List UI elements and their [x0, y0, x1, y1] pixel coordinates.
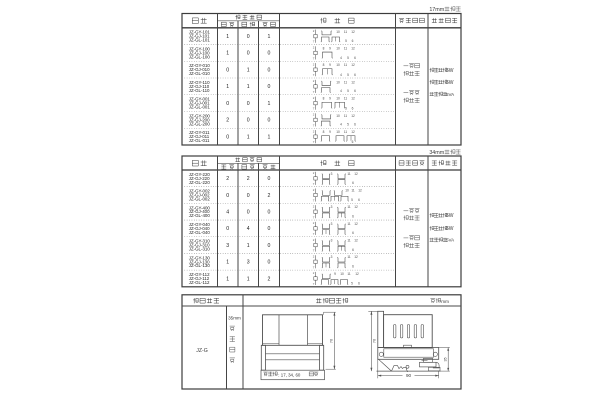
svg-text:34mm: 34mm — [429, 150, 444, 156]
svg-text:1: 1 — [247, 67, 250, 73]
svg-text:3: 3 — [247, 260, 250, 266]
svg-text:5VA: 5VA — [446, 92, 454, 97]
svg-text:10: 10 — [336, 30, 340, 34]
svg-text:11: 11 — [344, 97, 348, 101]
svg-text:4: 4 — [247, 226, 250, 232]
svg-text:0: 0 — [226, 193, 229, 199]
svg-text:5: 5 — [345, 39, 347, 43]
svg-text:JZ-GL-110: JZ-GL-110 — [189, 88, 210, 93]
svg-text:11: 11 — [344, 80, 348, 84]
svg-text:0: 0 — [268, 210, 271, 216]
svg-text:6: 6 — [354, 73, 356, 77]
svg-text:0: 0 — [268, 226, 271, 232]
svg-text:12: 12 — [354, 205, 358, 209]
svg-text:JZ-GL-130: JZ-GL-130 — [189, 263, 211, 268]
svg-text:12: 12 — [354, 239, 358, 243]
svg-text:3: 3 — [331, 239, 333, 243]
svg-text:70: 70 — [330, 339, 334, 343]
svg-text:11: 11 — [351, 188, 355, 192]
svg-text:0: 0 — [247, 193, 250, 199]
svg-text:2: 2 — [268, 193, 271, 199]
svg-text:4: 4 — [340, 56, 342, 60]
svg-text:1: 1 — [247, 276, 250, 282]
svg-text:0: 0 — [247, 34, 250, 40]
svg-text:5: 5 — [345, 106, 347, 110]
svg-text:4: 4 — [340, 123, 342, 127]
svg-text:1: 1 — [268, 101, 271, 107]
svg-text:JZ-GL-040: JZ-GL-040 — [189, 230, 211, 235]
svg-text:10: 10 — [336, 130, 340, 134]
svg-text:0: 0 — [268, 67, 271, 73]
svg-text:1: 1 — [226, 276, 229, 282]
svg-text:2: 2 — [247, 176, 250, 182]
svg-text:3: 3 — [331, 172, 333, 176]
svg-text:9: 9 — [329, 97, 331, 101]
svg-text:35mm: 35mm — [228, 316, 241, 321]
svg-text:4: 4 — [226, 210, 229, 216]
svg-text:17mm: 17mm — [429, 7, 444, 13]
svg-text:2: 2 — [226, 176, 229, 182]
svg-text:35: 35 — [444, 358, 448, 362]
svg-text:90: 90 — [406, 373, 412, 378]
svg-text:0: 0 — [226, 67, 229, 73]
svg-text:11: 11 — [347, 222, 351, 226]
svg-text:JZ-G: JZ-G — [196, 348, 208, 354]
svg-text:1: 1 — [268, 134, 271, 140]
svg-text:10: 10 — [336, 80, 340, 84]
svg-text:8: 8 — [323, 63, 325, 67]
svg-text:4: 4 — [340, 73, 342, 77]
svg-text:12: 12 — [351, 97, 355, 101]
svg-text:10: 10 — [345, 188, 349, 192]
svg-text:1: 1 — [247, 243, 250, 249]
svg-text:2: 2 — [226, 118, 229, 124]
svg-text:6: 6 — [352, 265, 354, 269]
svg-text:mm: mm — [441, 299, 449, 304]
svg-text:6: 6 — [352, 181, 354, 185]
svg-text:9: 9 — [334, 272, 336, 276]
svg-text:3: 3 — [226, 243, 229, 249]
svg-text:11: 11 — [347, 205, 351, 209]
svg-text:JZ-GL-400: JZ-GL-400 — [189, 213, 211, 218]
svg-text:12: 12 — [355, 272, 359, 276]
svg-text:0: 0 — [268, 243, 271, 249]
svg-text:1: 1 — [226, 260, 229, 266]
svg-text:1: 1 — [226, 51, 229, 57]
svg-text:12: 12 — [354, 172, 358, 176]
svg-text:10: 10 — [336, 114, 340, 118]
svg-text:0: 0 — [268, 84, 271, 90]
svg-text:JZ-GL-112: JZ-GL-112 — [189, 280, 210, 285]
svg-text:10: 10 — [340, 272, 344, 276]
svg-text:12: 12 — [351, 130, 355, 134]
svg-text:5: 5 — [347, 73, 349, 77]
svg-text:0: 0 — [247, 51, 250, 57]
svg-text:1: 1 — [226, 34, 229, 40]
svg-text:0: 0 — [226, 134, 229, 140]
svg-text:11: 11 — [344, 46, 348, 50]
svg-text:12: 12 — [351, 80, 355, 84]
svg-text:JZ-GL-200: JZ-GL-200 — [189, 121, 211, 126]
svg-text:0: 0 — [268, 176, 271, 182]
svg-text:3: 3 — [331, 222, 333, 226]
svg-text:5: 5 — [351, 198, 353, 202]
svg-text:4: 4 — [340, 89, 342, 93]
svg-text:9: 9 — [329, 46, 331, 50]
svg-text:0: 0 — [247, 101, 250, 107]
svg-text:6: 6 — [354, 56, 356, 60]
svg-text:5: 5 — [347, 89, 349, 93]
svg-text:11: 11 — [344, 63, 348, 67]
svg-text:6: 6 — [352, 140, 354, 144]
svg-text:17, 34, 60: 17, 34, 60 — [281, 373, 301, 378]
svg-text:11: 11 — [347, 255, 351, 259]
svg-text:12: 12 — [354, 222, 358, 226]
svg-text:JZ-GL-101: JZ-GL-101 — [189, 38, 211, 43]
svg-text:70: 70 — [372, 339, 376, 343]
svg-text:JZ-GL-100: JZ-GL-100 — [189, 54, 211, 59]
svg-text:11: 11 — [344, 30, 348, 34]
svg-text:6: 6 — [352, 248, 354, 252]
svg-text:5: 5 — [351, 281, 353, 285]
svg-text:12: 12 — [351, 46, 355, 50]
svg-text:11: 11 — [344, 114, 348, 118]
svg-text::: : — [278, 373, 279, 378]
svg-text:JZ-GL-310: JZ-GL-310 — [189, 247, 211, 252]
svg-text:6: 6 — [352, 215, 354, 219]
svg-text:8: 8 — [323, 46, 325, 50]
svg-text:6: 6 — [352, 106, 354, 110]
svg-text:6: 6 — [358, 198, 360, 202]
svg-text:10: 10 — [336, 46, 340, 50]
svg-text:11: 11 — [347, 239, 351, 243]
svg-text:0: 0 — [226, 226, 229, 232]
svg-text:5: 5 — [347, 123, 349, 127]
svg-text:0: 0 — [268, 260, 271, 266]
svg-text:6: 6 — [354, 123, 356, 127]
svg-text:0: 0 — [247, 210, 250, 216]
svg-text:11: 11 — [347, 172, 351, 176]
svg-text:JZ-GL-010: JZ-GL-010 — [189, 71, 211, 76]
svg-text:8: 8 — [323, 130, 325, 134]
svg-text:5: 5 — [347, 56, 349, 60]
svg-text:5VA: 5VA — [446, 238, 454, 243]
svg-text:6: 6 — [352, 39, 354, 43]
svg-text:8: 8 — [323, 97, 325, 101]
svg-text:6: 6 — [358, 281, 360, 285]
svg-text:3: 3 — [331, 255, 333, 259]
svg-text:12: 12 — [351, 63, 355, 67]
svg-text:9: 9 — [329, 63, 331, 67]
svg-text:1: 1 — [268, 34, 271, 40]
svg-text:9: 9 — [329, 130, 331, 134]
svg-text:0: 0 — [247, 118, 250, 124]
svg-text:2: 2 — [268, 276, 271, 282]
svg-text:6: 6 — [352, 231, 354, 235]
svg-text:1: 1 — [226, 84, 229, 90]
svg-text:10: 10 — [336, 63, 340, 67]
svg-text:0: 0 — [226, 101, 229, 107]
svg-text:JZ-GL-011: JZ-GL-011 — [189, 138, 210, 143]
svg-text:12: 12 — [351, 114, 355, 118]
svg-text:12: 12 — [351, 30, 355, 34]
svg-text:0: 0 — [268, 118, 271, 124]
svg-text:11: 11 — [347, 272, 351, 276]
svg-text:0: 0 — [268, 51, 271, 57]
svg-text:12: 12 — [354, 255, 358, 259]
svg-text:10: 10 — [336, 97, 340, 101]
svg-text:JZ-GL-001: JZ-GL-001 — [189, 105, 211, 110]
svg-text:1: 1 — [247, 84, 250, 90]
svg-text:11: 11 — [344, 130, 348, 134]
svg-text:3: 3 — [331, 205, 333, 209]
svg-text:JZ-GL-002: JZ-GL-002 — [189, 196, 211, 201]
svg-text:JZ-GL-220: JZ-GL-220 — [189, 180, 211, 185]
svg-text:1: 1 — [247, 134, 250, 140]
svg-text:6: 6 — [354, 89, 356, 93]
svg-text:12: 12 — [358, 188, 362, 192]
